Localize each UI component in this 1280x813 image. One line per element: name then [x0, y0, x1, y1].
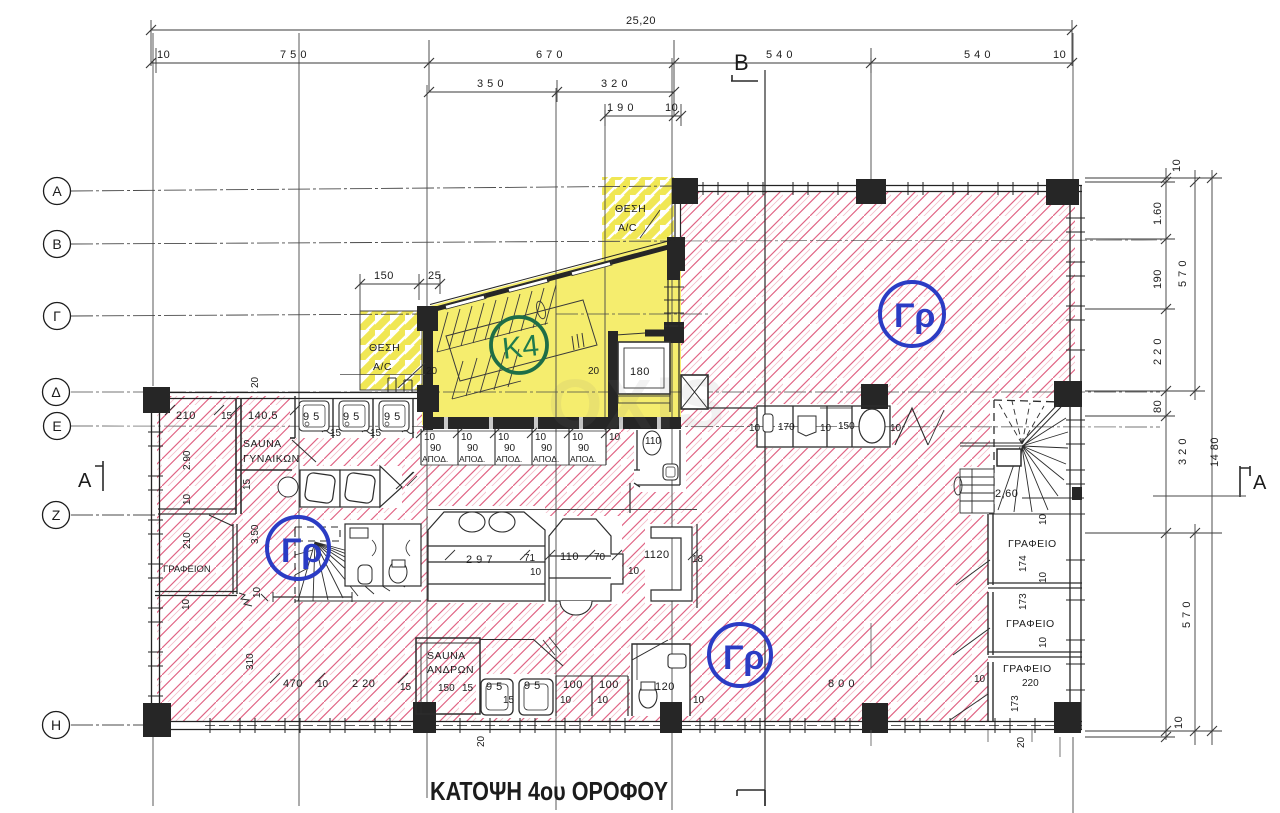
svg-text:10: 10 — [820, 423, 832, 434]
svg-text:Η: Η — [51, 717, 61, 733]
svg-text:20: 20 — [1016, 736, 1027, 748]
svg-text:10: 10 — [1171, 159, 1183, 172]
svg-text:100: 100 — [599, 679, 619, 691]
svg-text:170: 170 — [778, 422, 795, 433]
svg-text:110: 110 — [560, 551, 579, 563]
svg-text:9 5: 9 5 — [343, 411, 360, 423]
svg-text:9 5: 9 5 — [384, 411, 401, 423]
svg-text:Α: Α — [78, 470, 92, 492]
svg-text:Α/C: Α/C — [618, 222, 637, 234]
svg-text:470: 470 — [283, 678, 303, 690]
svg-text:10: 10 — [535, 432, 547, 443]
svg-text:2 2 0: 2 2 0 — [1152, 338, 1164, 365]
svg-text:10: 10 — [252, 586, 263, 598]
svg-text:Α: Α — [1253, 472, 1267, 494]
svg-text:9 5: 9 5 — [486, 681, 503, 693]
svg-text:20: 20 — [250, 376, 261, 388]
svg-text:10: 10 — [560, 695, 572, 706]
svg-text:220: 220 — [1022, 678, 1039, 689]
svg-text:SAUNA: SAUNA — [427, 650, 466, 662]
svg-text:ΑΠΟΔ.: ΑΠΟΔ. — [459, 454, 485, 464]
svg-text:5 7 0: 5 7 0 — [1181, 601, 1193, 628]
svg-text:90: 90 — [430, 443, 442, 454]
svg-text:ΑΠΟΔ.: ΑΠΟΔ. — [422, 454, 448, 464]
svg-text:10: 10 — [1173, 716, 1185, 729]
svg-text:ΑΠΟΔ.: ΑΠΟΔ. — [533, 454, 559, 464]
svg-text:ΓΡΑΦΕΙΟ: ΓΡΑΦΕΙΟ — [1006, 618, 1055, 630]
svg-text:140.5: 140.5 — [248, 410, 278, 422]
svg-text:25,20: 25,20 — [626, 15, 656, 27]
svg-text:10: 10 — [1038, 636, 1049, 648]
svg-text:1.60: 1.60 — [1152, 202, 1164, 225]
svg-text:10: 10 — [749, 423, 761, 434]
svg-text:SAUNA: SAUNA — [243, 438, 282, 450]
svg-text:90: 90 — [504, 443, 516, 454]
svg-text:Κ4: Κ4 — [501, 329, 541, 366]
svg-text:ΓΥΝΑΙΚΩΝ: ΓΥΝΑΙΚΩΝ — [243, 453, 300, 465]
svg-text:Α/C: Α/C — [373, 361, 392, 373]
svg-text:ΓΡΑΦΕΙΟΝ: ΓΡΑΦΕΙΟΝ — [163, 564, 211, 575]
svg-text:Ζ: Ζ — [52, 507, 61, 523]
svg-text:10: 10 — [597, 695, 609, 706]
svg-text:120: 120 — [655, 681, 675, 693]
svg-text:90: 90 — [467, 443, 479, 454]
svg-text:Ε: Ε — [52, 418, 61, 434]
svg-text:210: 210 — [182, 532, 193, 549]
svg-text:90: 90 — [578, 443, 590, 454]
svg-text:2,60: 2,60 — [995, 488, 1018, 500]
svg-text:14 80: 14 80 — [1209, 437, 1221, 467]
svg-text:15: 15 — [221, 411, 233, 422]
svg-text:Γρ: Γρ — [281, 532, 322, 570]
svg-text:OXlS: OXlS — [548, 365, 727, 443]
svg-text:3 2 0: 3 2 0 — [1177, 438, 1189, 465]
svg-text:ΘΕΣΗ: ΘΕΣΗ — [615, 203, 646, 215]
svg-text:ΘΕΣΗ: ΘΕΣΗ — [369, 342, 400, 354]
svg-text:ΑΠΟΔ.: ΑΠΟΔ. — [570, 454, 596, 464]
svg-text:2.90: 2.90 — [182, 450, 193, 470]
svg-text:10: 10 — [461, 432, 473, 443]
svg-text:7 5 0: 7 5 0 — [280, 49, 307, 61]
svg-text:10: 10 — [182, 493, 193, 505]
svg-text:3 5 0: 3 5 0 — [477, 78, 504, 90]
svg-text:10: 10 — [628, 566, 640, 577]
svg-text:5 4 0: 5 4 0 — [766, 49, 793, 61]
svg-text:10: 10 — [317, 679, 329, 690]
svg-text:Β: Β — [734, 50, 749, 75]
svg-text:Α: Α — [52, 183, 62, 199]
svg-text:3 2 0: 3 2 0 — [601, 78, 628, 90]
svg-text:173: 173 — [1018, 593, 1029, 610]
svg-text:15: 15 — [370, 428, 382, 439]
svg-text:10: 10 — [974, 674, 986, 685]
svg-text:150: 150 — [374, 270, 394, 282]
svg-text:15: 15 — [330, 428, 342, 439]
svg-text:18: 18 — [692, 554, 704, 565]
svg-text:10: 10 — [157, 49, 170, 61]
svg-text:ΓΡΑΦΕΙΟ: ΓΡΑΦΕΙΟ — [1008, 538, 1057, 550]
svg-text:ΑΠΟΔ.: ΑΠΟΔ. — [496, 454, 522, 464]
svg-text:Γρ: Γρ — [723, 639, 764, 677]
svg-text:20: 20 — [476, 735, 487, 747]
svg-text:6 7 0: 6 7 0 — [536, 49, 563, 61]
svg-text:ΓΡΑΦΕΙΟ: ΓΡΑΦΕΙΟ — [1003, 663, 1052, 675]
svg-text:Γρ: Γρ — [894, 297, 935, 335]
svg-text:9 5: 9 5 — [303, 411, 320, 423]
svg-text:10: 10 — [1038, 571, 1049, 583]
svg-text:310: 310 — [245, 653, 256, 670]
svg-text:9 5: 9 5 — [524, 680, 541, 692]
svg-text:2 20: 2 20 — [352, 678, 375, 690]
svg-text:15: 15 — [462, 683, 474, 694]
svg-text:70: 70 — [594, 552, 606, 563]
svg-text:190: 190 — [1152, 269, 1164, 289]
svg-text:3.50: 3.50 — [250, 524, 261, 544]
svg-text:5 4 0: 5 4 0 — [964, 49, 991, 61]
svg-text:150: 150 — [438, 683, 455, 694]
svg-text:10: 10 — [530, 567, 542, 578]
svg-text:80: 80 — [1152, 400, 1164, 413]
svg-text:5 7 0: 5 7 0 — [1177, 260, 1189, 287]
svg-text:10: 10 — [1053, 49, 1066, 61]
svg-text:20: 20 — [426, 366, 438, 377]
svg-text:10: 10 — [693, 695, 705, 706]
svg-text:10: 10 — [424, 432, 436, 443]
svg-text:8 0 0: 8 0 0 — [828, 678, 855, 690]
svg-text:15: 15 — [503, 695, 515, 706]
svg-text:25: 25 — [428, 270, 441, 282]
svg-text:Β: Β — [52, 236, 61, 252]
svg-text:174: 174 — [1018, 555, 1029, 572]
svg-text:1120: 1120 — [644, 549, 670, 561]
svg-text:100: 100 — [563, 679, 583, 691]
svg-text:2 9 7: 2 9 7 — [466, 554, 493, 566]
svg-text:1 9 0: 1 9 0 — [607, 102, 634, 114]
svg-text:15: 15 — [400, 682, 412, 693]
svg-text:10: 10 — [181, 598, 192, 610]
svg-text:Δ: Δ — [51, 384, 60, 400]
svg-text:173: 173 — [1010, 695, 1021, 712]
svg-text:15: 15 — [242, 478, 253, 490]
svg-text:150: 150 — [838, 421, 855, 432]
svg-text:10: 10 — [665, 102, 678, 114]
svg-text:Γ: Γ — [53, 308, 61, 324]
svg-text:10: 10 — [498, 432, 510, 443]
svg-text:10: 10 — [1038, 513, 1049, 525]
svg-text:ΑΝΔΡΩΝ: ΑΝΔΡΩΝ — [427, 664, 474, 676]
svg-text:10: 10 — [890, 423, 902, 434]
svg-text:90: 90 — [541, 443, 553, 454]
svg-text:210: 210 — [176, 410, 196, 422]
svg-text:ΚΑΤΟΨΗ 4ου ΟΡΟΦΟΥ: ΚΑΤΟΨΗ 4ου ΟΡΟΦΟΥ — [430, 776, 668, 806]
